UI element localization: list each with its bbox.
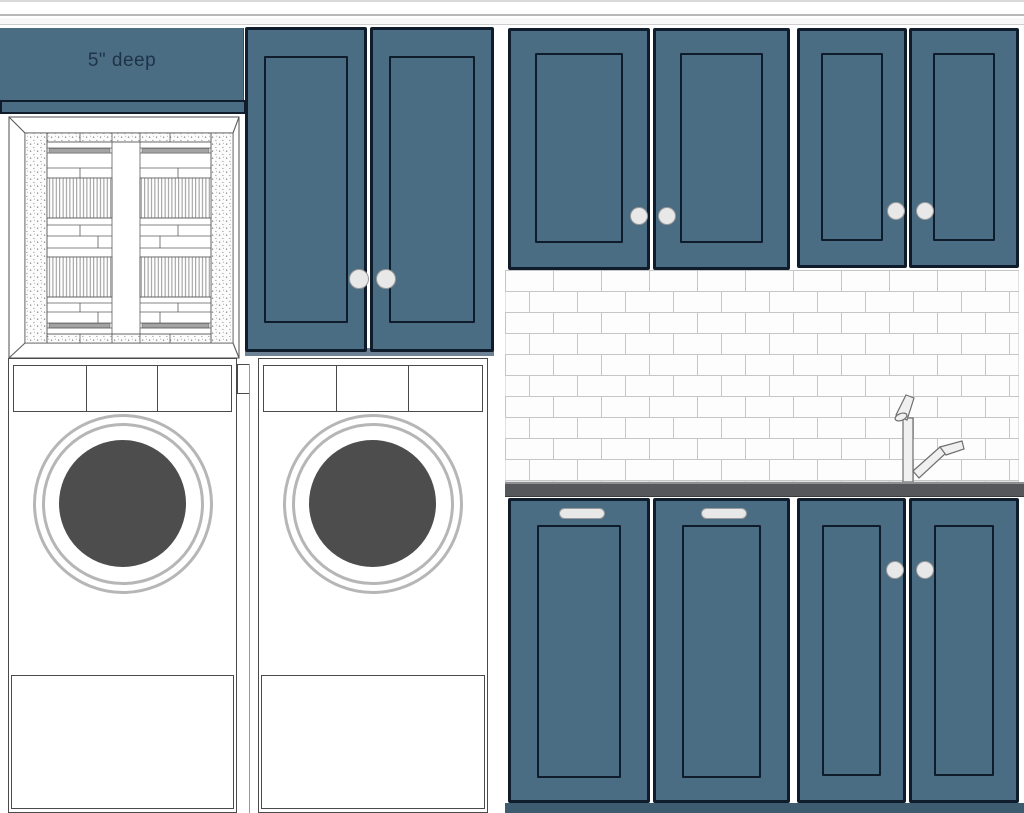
faucet-post	[903, 418, 913, 482]
door-knob	[349, 269, 369, 289]
door-panel	[821, 53, 883, 241]
door-panel	[682, 525, 761, 778]
base-cabinet-door-1	[508, 498, 650, 803]
tall-cabinet-door-right	[370, 27, 494, 352]
upper-cabinet-door-1	[508, 28, 650, 270]
laundry-room-elevation: 5" deep	[0, 0, 1024, 813]
upper-cabinet-door-3	[797, 28, 907, 268]
base-cabinet-door-2	[653, 498, 790, 803]
door-panel	[389, 56, 475, 323]
base-cabinet-door-4	[909, 498, 1019, 803]
door-knob	[376, 269, 396, 289]
door-knob	[886, 561, 904, 579]
washer-control-panel	[263, 365, 483, 412]
door-panel	[264, 56, 348, 323]
panel-divider	[86, 366, 87, 411]
shelf-depth-note: 5" deep	[0, 50, 244, 72]
door-panel	[934, 525, 994, 776]
washer-left	[8, 358, 237, 813]
pedestal-drawer	[261, 675, 485, 809]
washer-gap	[249, 364, 250, 813]
door-panel	[822, 525, 881, 776]
washer-right	[258, 358, 488, 813]
washer-door-glass	[309, 440, 436, 567]
base-cabinet-door-3	[797, 498, 906, 803]
shelf-front-edge	[0, 100, 246, 114]
upper-cabinet-door-2	[653, 28, 790, 270]
panel-divider	[336, 366, 337, 411]
ceiling-strip	[0, 0, 1024, 16]
door-panel	[537, 525, 621, 778]
door-panel	[933, 53, 995, 241]
door-knob	[630, 207, 648, 225]
door-knob	[887, 202, 905, 220]
pedestal-drawer	[11, 675, 234, 809]
window	[8, 114, 240, 360]
panel-divider	[157, 366, 158, 411]
door-knob	[916, 202, 934, 220]
faucet-handle	[913, 447, 946, 478]
faucet	[883, 388, 975, 484]
upper-cabinet-door-4	[909, 28, 1019, 268]
toe-kick	[505, 803, 1024, 813]
washer-door-glass	[59, 440, 186, 567]
door-knob	[916, 561, 934, 579]
pull-handle	[701, 508, 747, 519]
door-panel	[535, 53, 623, 243]
panel-divider	[408, 366, 409, 411]
pull-handle	[559, 508, 605, 519]
washer-control-panel	[13, 365, 232, 412]
tall-cabinet-door-left	[245, 27, 367, 352]
door-panel	[680, 53, 763, 243]
door-knob	[658, 207, 676, 225]
countertop	[505, 482, 1024, 497]
crown-molding-line	[0, 18, 1024, 25]
